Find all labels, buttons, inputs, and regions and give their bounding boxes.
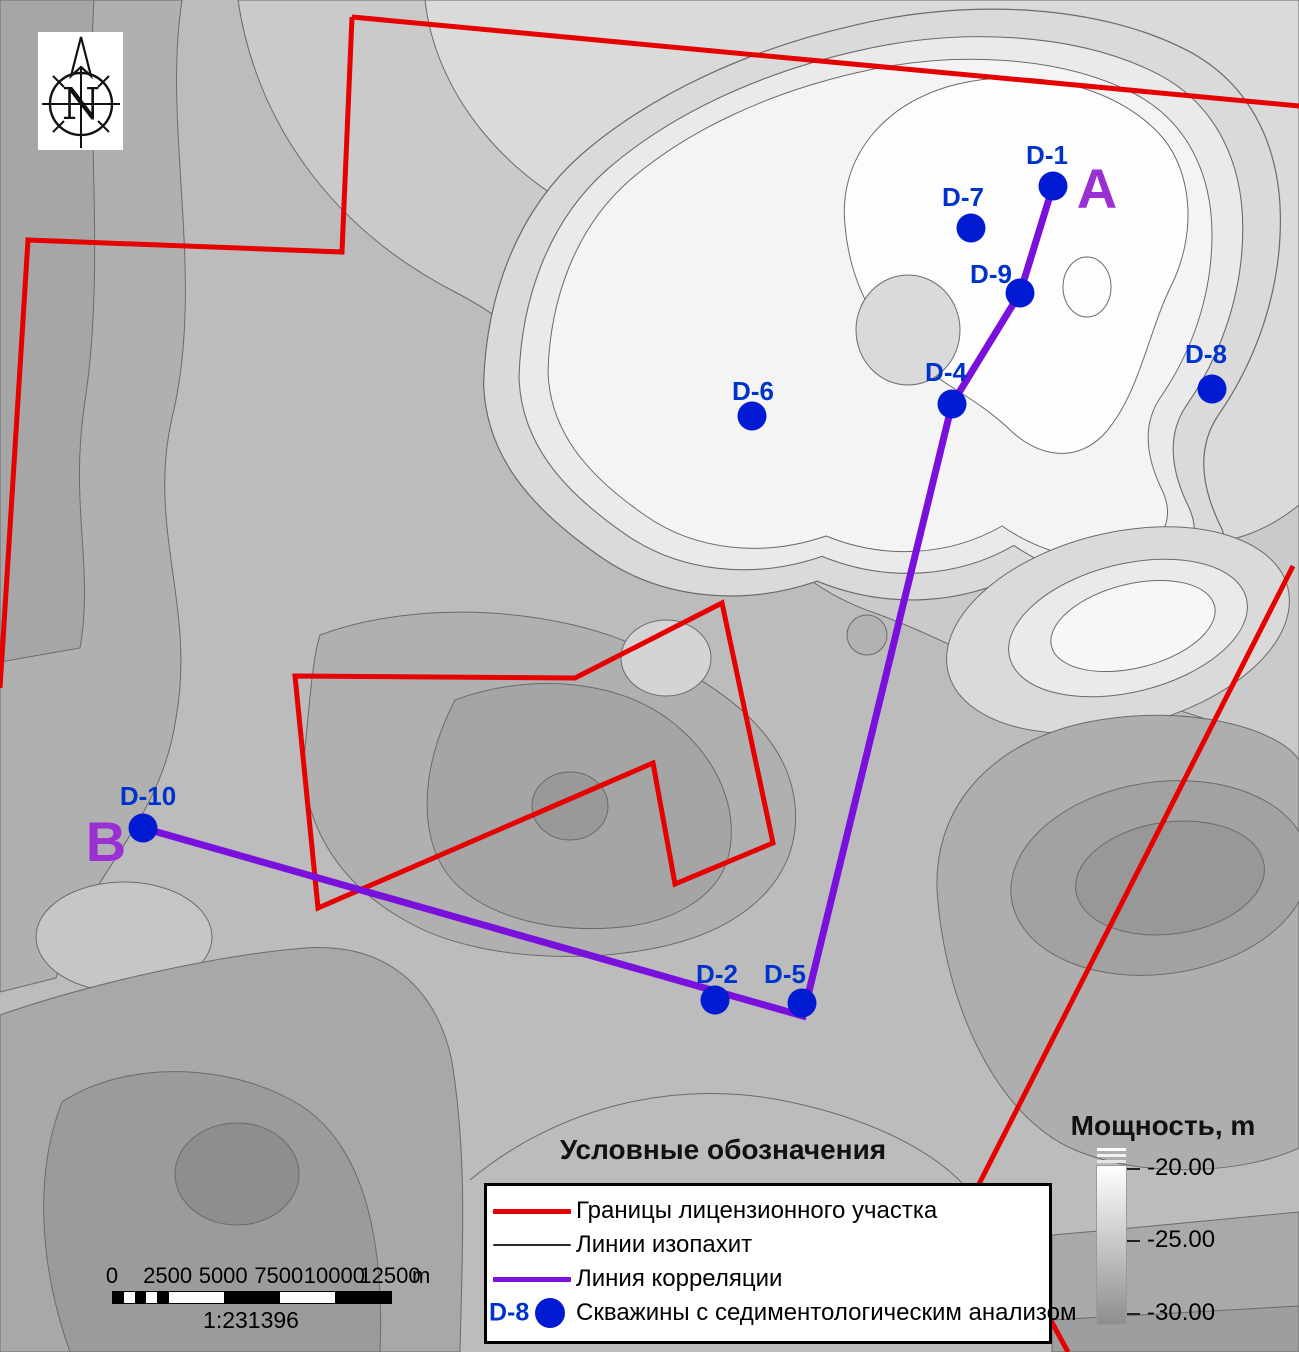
scale-bar-tick-label: 10000 (304, 1263, 365, 1289)
thickness-scale-gradient-bar (1096, 1165, 1127, 1325)
scale-bar-tick-label: 5000 (199, 1263, 248, 1289)
scale-bar-tick-label: 7500 (254, 1263, 303, 1289)
legend-well-dot-icon (535, 1298, 565, 1328)
well-marker-d-1 (1039, 172, 1068, 201)
legend-line-swatch (493, 1244, 571, 1246)
legend-title: Условные обозначения (560, 1134, 886, 1166)
thickness-scale-tick (1127, 1240, 1140, 1242)
legend-item-label: Линия корреляции (576, 1265, 782, 1293)
well-label-d-6: D-6 (732, 376, 774, 406)
scale-bar-segment (124, 1292, 135, 1303)
legend-item-label: Скважины с седиментологическим анализом (576, 1299, 1076, 1327)
legend-item-2: Линии изопахит (487, 1230, 1049, 1260)
thickness-scale-tick (1127, 1168, 1140, 1170)
scale-bar-tick-label: 0 (106, 1263, 118, 1289)
well-marker-d-7 (957, 214, 986, 243)
thickness-scale-tick-label: -25.00 (1147, 1226, 1215, 1254)
scale-bar-segment (224, 1292, 280, 1303)
well-marker-d-4 (938, 390, 967, 419)
section-label-b: B (86, 810, 126, 873)
well-label-d-4: D-4 (925, 357, 967, 387)
legend-item-4: D-8Скважины с седиментологическим анализ… (487, 1298, 1049, 1328)
scale-bar-segment (169, 1292, 225, 1303)
well-label-d-1: D-1 (1026, 140, 1068, 170)
legend-line-swatch (493, 1209, 571, 1214)
thickness-scale-step (1097, 1160, 1126, 1163)
compass-icon: N (38, 32, 123, 150)
well-marker-d-5 (788, 989, 817, 1018)
scale-bar-tick-label: 2500 (143, 1263, 192, 1289)
legend-line-swatch (493, 1277, 571, 1282)
section-label-a: A (1077, 157, 1117, 220)
north-arrow-compass: N (38, 32, 123, 150)
well-label-d-9: D-9 (970, 259, 1012, 289)
well-label-d-8: D-8 (1185, 339, 1227, 369)
thickness-scale-step (1097, 1148, 1126, 1151)
isopach-map-figure: D-1D-7D-9D-4D-6D-8D-10D-2D-5AB N Условны… (0, 0, 1299, 1352)
scale-bar-segment (335, 1292, 391, 1303)
scale-bar-segment (135, 1292, 146, 1303)
legend-item-label: Границы лицензионного участка (576, 1197, 937, 1225)
legend-item-3: Линия корреляции (487, 1264, 1049, 1294)
scale-bar-segment (280, 1292, 336, 1303)
scale-bar-segments (112, 1291, 392, 1304)
scale-bar-unit: m (412, 1263, 430, 1289)
legend-item-1: Границы лицензионного участка (487, 1196, 1049, 1226)
well-label-d-7: D-7 (942, 182, 984, 212)
thickness-scale-tick (1127, 1313, 1140, 1315)
well-label-d-5: D-5 (764, 959, 806, 989)
well-label-d-10: D-10 (120, 781, 176, 811)
scale-ratio: 1:231396 (203, 1307, 299, 1334)
thickness-scale-step (1097, 1154, 1126, 1157)
well-marker-d-10 (129, 814, 158, 843)
well-marker-d-8 (1198, 375, 1227, 404)
compass-north-letter: N (62, 79, 101, 130)
thickness-scale-title: Мощность, m (1071, 1110, 1256, 1142)
well-label-d-2: D-2 (696, 959, 738, 989)
thickness-scale-tick-label: -30.00 (1147, 1299, 1215, 1327)
scale-bar-segment (146, 1292, 157, 1303)
legend-item-label: Линии изопахит (576, 1231, 752, 1259)
legend-box: Границы лицензионного участкаЛинии изопа… (484, 1183, 1052, 1344)
well-marker-d-2 (701, 986, 730, 1015)
thickness-scale-tick-label: -20.00 (1147, 1154, 1215, 1182)
scale-bar-segment (113, 1292, 124, 1303)
scale-bar-segment (157, 1292, 168, 1303)
legend-well-id: D-8 (489, 1299, 529, 1328)
